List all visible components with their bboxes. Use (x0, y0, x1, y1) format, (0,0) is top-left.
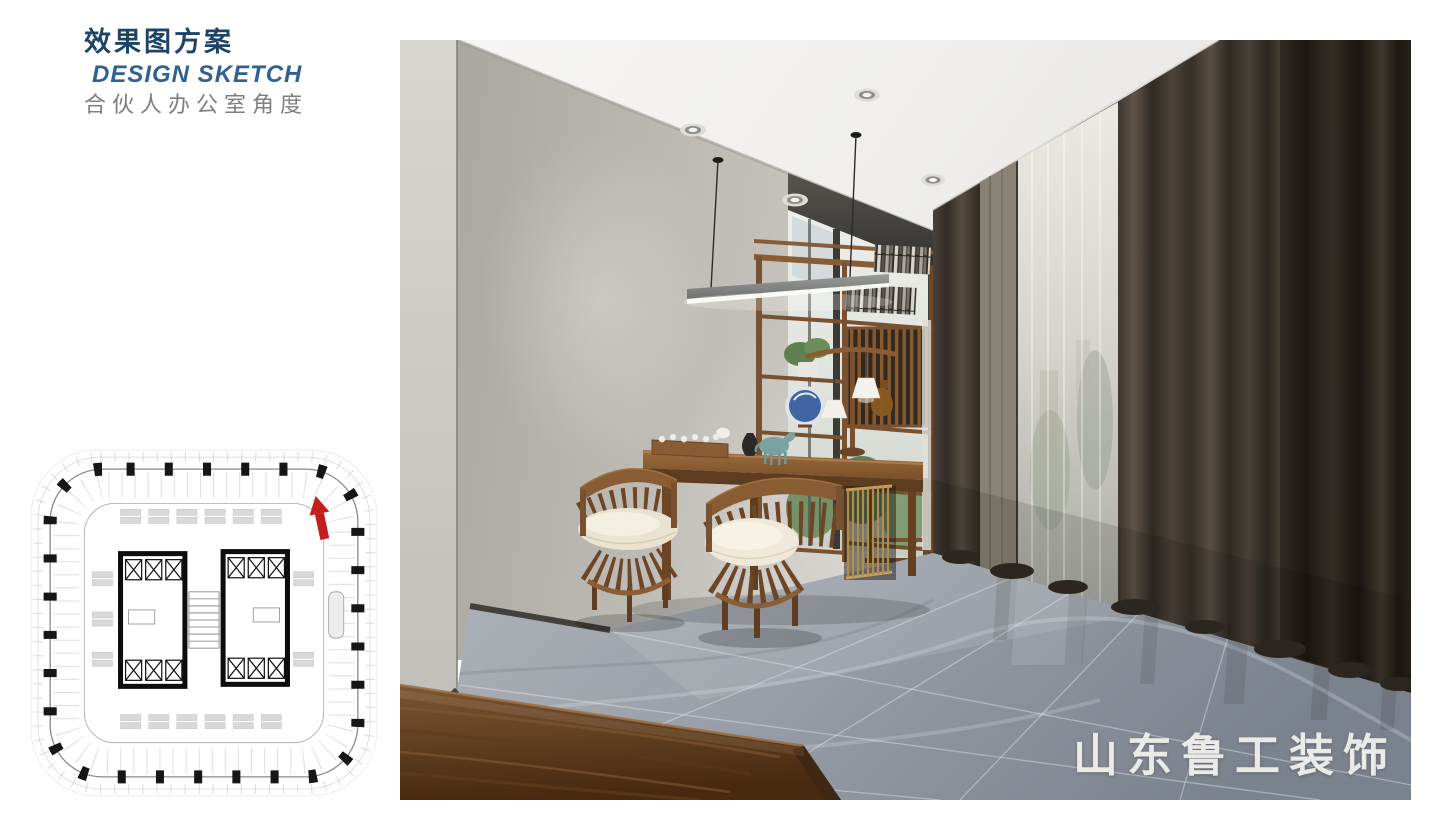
rendering-scene (400, 40, 1411, 800)
interior-rendering: 山东鲁工装饰 (400, 40, 1411, 800)
stairs (189, 592, 219, 648)
conference-table (329, 592, 344, 638)
page-subtitle: 合伙人办公室角度 (84, 92, 308, 120)
elevator-core-right (223, 552, 287, 685)
header: 效果图方案 DESIGN SKETCH 合伙人办公室角度 (84, 26, 308, 119)
floor-plan-drawing (28, 441, 380, 803)
brass-magazine-rack (844, 486, 896, 580)
floor-plan-thumbnail (28, 441, 380, 803)
page-title-english: DESIGN SKETCH (84, 60, 308, 90)
books-top-row (874, 245, 931, 275)
decorative-plate (785, 386, 825, 426)
elevator-core-left (121, 554, 185, 687)
page-title: 效果图方案 (84, 26, 308, 60)
presentation-slide: 效果图方案 DESIGN SKETCH 合伙人办公室角度 (0, 0, 1439, 824)
watermark: 山东鲁工装饰 (1073, 719, 1397, 784)
